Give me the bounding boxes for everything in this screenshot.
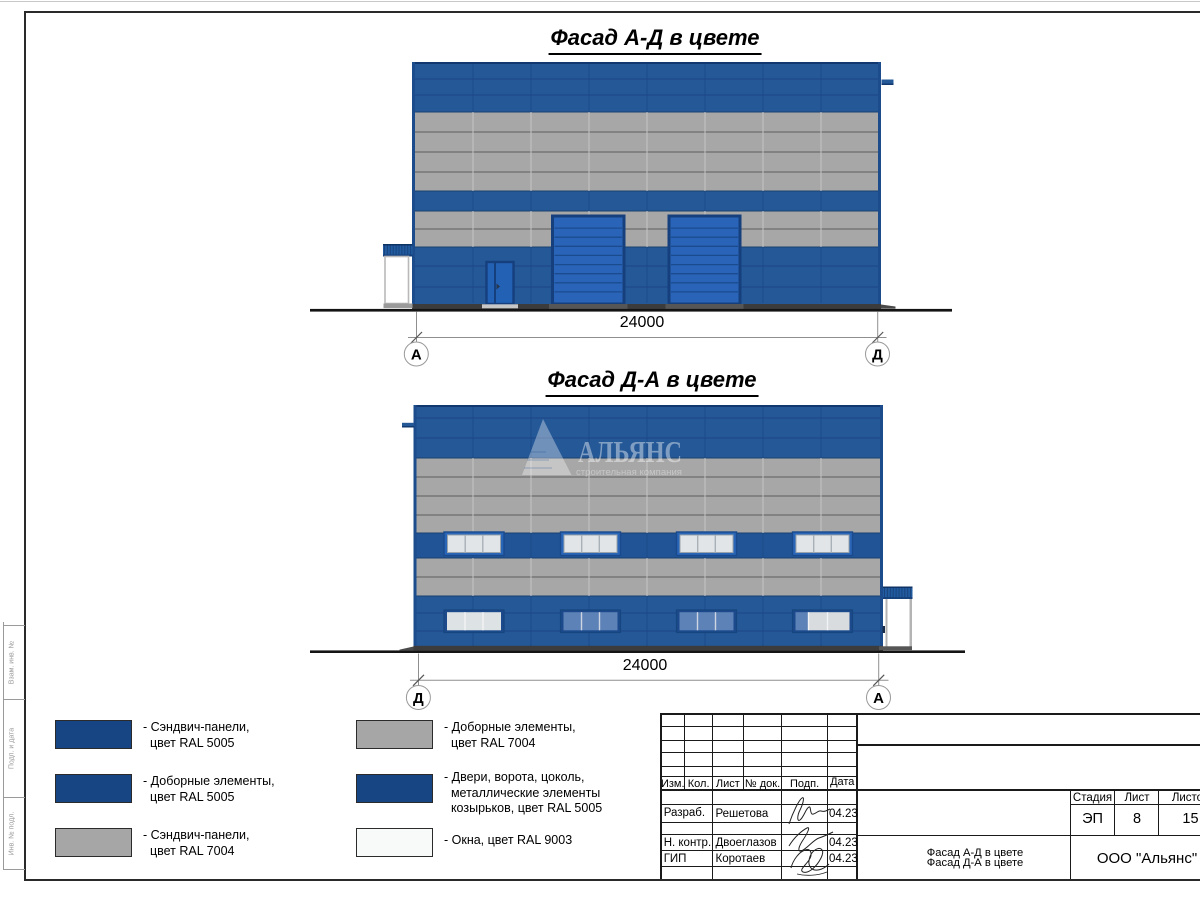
- svg-text:строительная компания: строительная компания: [576, 467, 682, 477]
- svg-text:АЛЬЯНС: АЛЬЯНС: [578, 434, 682, 469]
- svg-text:А: А: [411, 347, 422, 364]
- svg-text:Д: Д: [413, 690, 424, 707]
- svg-text:А: А: [873, 690, 884, 707]
- svg-text:Д: Д: [872, 347, 883, 364]
